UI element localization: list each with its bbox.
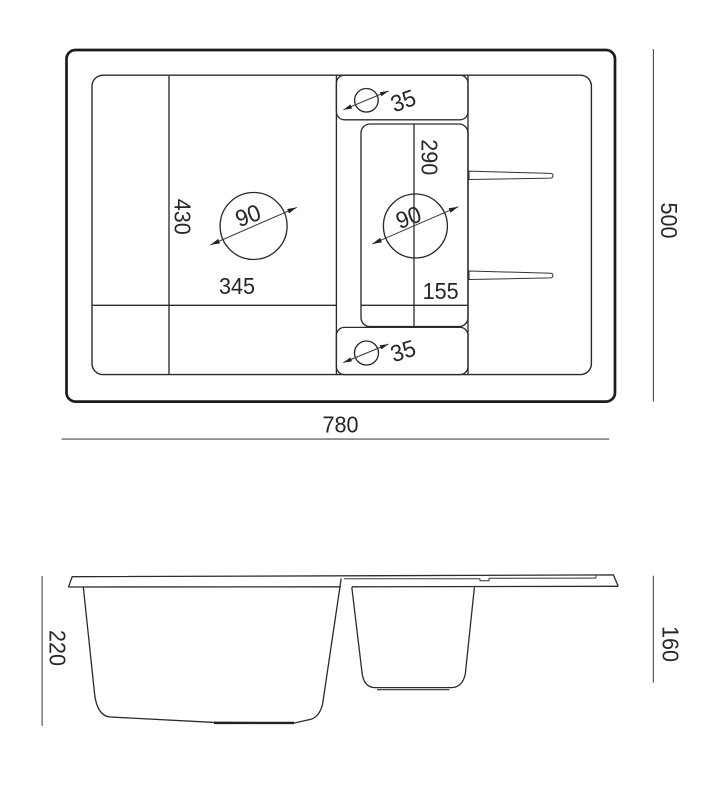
svg-text:220: 220 bbox=[45, 630, 71, 666]
svg-text:345: 345 bbox=[219, 273, 255, 299]
svg-text:430: 430 bbox=[170, 199, 196, 235]
svg-text:35: 35 bbox=[387, 335, 419, 367]
svg-text:155: 155 bbox=[423, 278, 459, 304]
svg-text:90: 90 bbox=[392, 201, 424, 234]
svg-text:35: 35 bbox=[387, 84, 419, 117]
svg-text:500: 500 bbox=[656, 203, 682, 239]
svg-text:780: 780 bbox=[323, 412, 359, 438]
svg-text:290: 290 bbox=[416, 139, 442, 175]
svg-text:160: 160 bbox=[658, 626, 684, 662]
svg-text:90: 90 bbox=[232, 199, 264, 232]
